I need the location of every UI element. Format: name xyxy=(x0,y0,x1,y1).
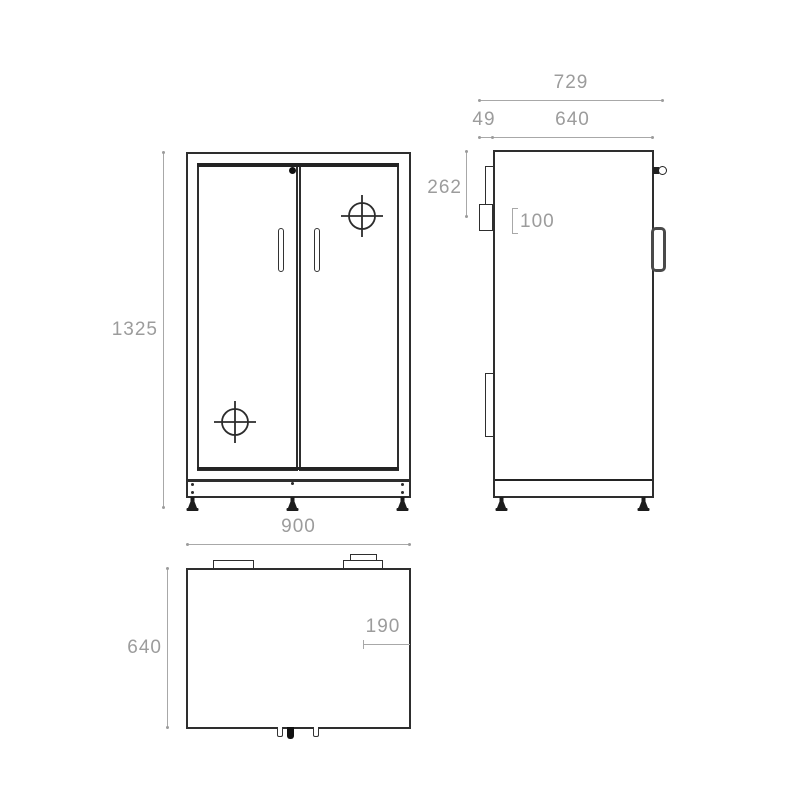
dim-end-dot xyxy=(408,543,411,546)
top-front-pin xyxy=(313,727,319,737)
crosshair-target-icon xyxy=(339,193,385,239)
dim-label-height: 1325 xyxy=(96,320,158,339)
side-cabinet-body xyxy=(493,150,654,498)
dim-end-dot xyxy=(465,150,468,153)
dim-label-bracket-height: 100 xyxy=(520,212,555,231)
technical-drawing-canvas: 1325 900 xyxy=(0,0,800,800)
dim-line-bracket-height xyxy=(512,208,513,234)
dim-end-dot xyxy=(478,99,481,102)
screw-dot xyxy=(291,482,294,485)
screw-dot xyxy=(191,491,194,494)
dim-end-dot xyxy=(166,726,169,729)
dim-line-depth-split xyxy=(479,137,653,138)
dim-label-upper-section: 262 xyxy=(418,178,462,197)
front-door-bottom-rail xyxy=(197,467,399,470)
screw-dot xyxy=(401,491,404,494)
dim-end-dot xyxy=(651,136,654,139)
dim-end-dot xyxy=(661,99,664,102)
left-door-handle xyxy=(278,228,284,272)
front-door-top-rail xyxy=(197,163,399,167)
dim-label-total-depth: 729 xyxy=(479,73,663,92)
front-plinth xyxy=(186,480,411,498)
top-front-pin-solid xyxy=(287,727,294,739)
dim-tick xyxy=(512,208,518,209)
leveling-foot-icon xyxy=(634,497,653,512)
side-back-bracket xyxy=(479,204,493,231)
dim-line-corner-inset xyxy=(363,644,410,645)
dim-line-top-depth xyxy=(167,568,168,728)
right-door-handle xyxy=(314,228,320,272)
dim-tick xyxy=(512,233,518,234)
leveling-foot-icon xyxy=(183,497,202,512)
dim-label-body-depth: 640 xyxy=(492,110,653,129)
side-door-handle xyxy=(651,227,666,272)
dim-label-width: 900 xyxy=(187,517,410,536)
leveling-foot-icon xyxy=(393,497,412,512)
dim-end-dot xyxy=(465,215,468,218)
leveling-foot-icon xyxy=(492,497,511,512)
dim-label-top-depth: 640 xyxy=(104,638,162,657)
dim-label-corner-inset: 190 xyxy=(357,617,409,636)
dim-end-dot xyxy=(162,506,165,509)
dim-end-dot xyxy=(186,543,189,546)
crosshair-target-icon xyxy=(212,399,258,445)
dim-end-dot xyxy=(478,136,481,139)
screw-dot xyxy=(401,483,404,486)
lock-icon xyxy=(289,167,296,174)
side-plinth-line xyxy=(495,479,652,481)
top-cabinet-outline xyxy=(186,568,411,729)
dim-line-upper-section xyxy=(466,151,467,217)
top-front-pin xyxy=(277,727,283,737)
dim-tick xyxy=(363,640,364,649)
dim-end-dot xyxy=(162,151,165,154)
dim-mid-dot xyxy=(491,136,494,139)
dim-end-dot xyxy=(166,567,169,570)
lock-cylinder-cap-icon xyxy=(658,166,667,175)
dim-line-total-depth xyxy=(479,100,663,101)
dim-line-width xyxy=(187,544,410,545)
dim-line-height xyxy=(163,152,164,508)
screw-dot xyxy=(191,483,194,486)
leveling-foot-icon xyxy=(283,497,302,512)
